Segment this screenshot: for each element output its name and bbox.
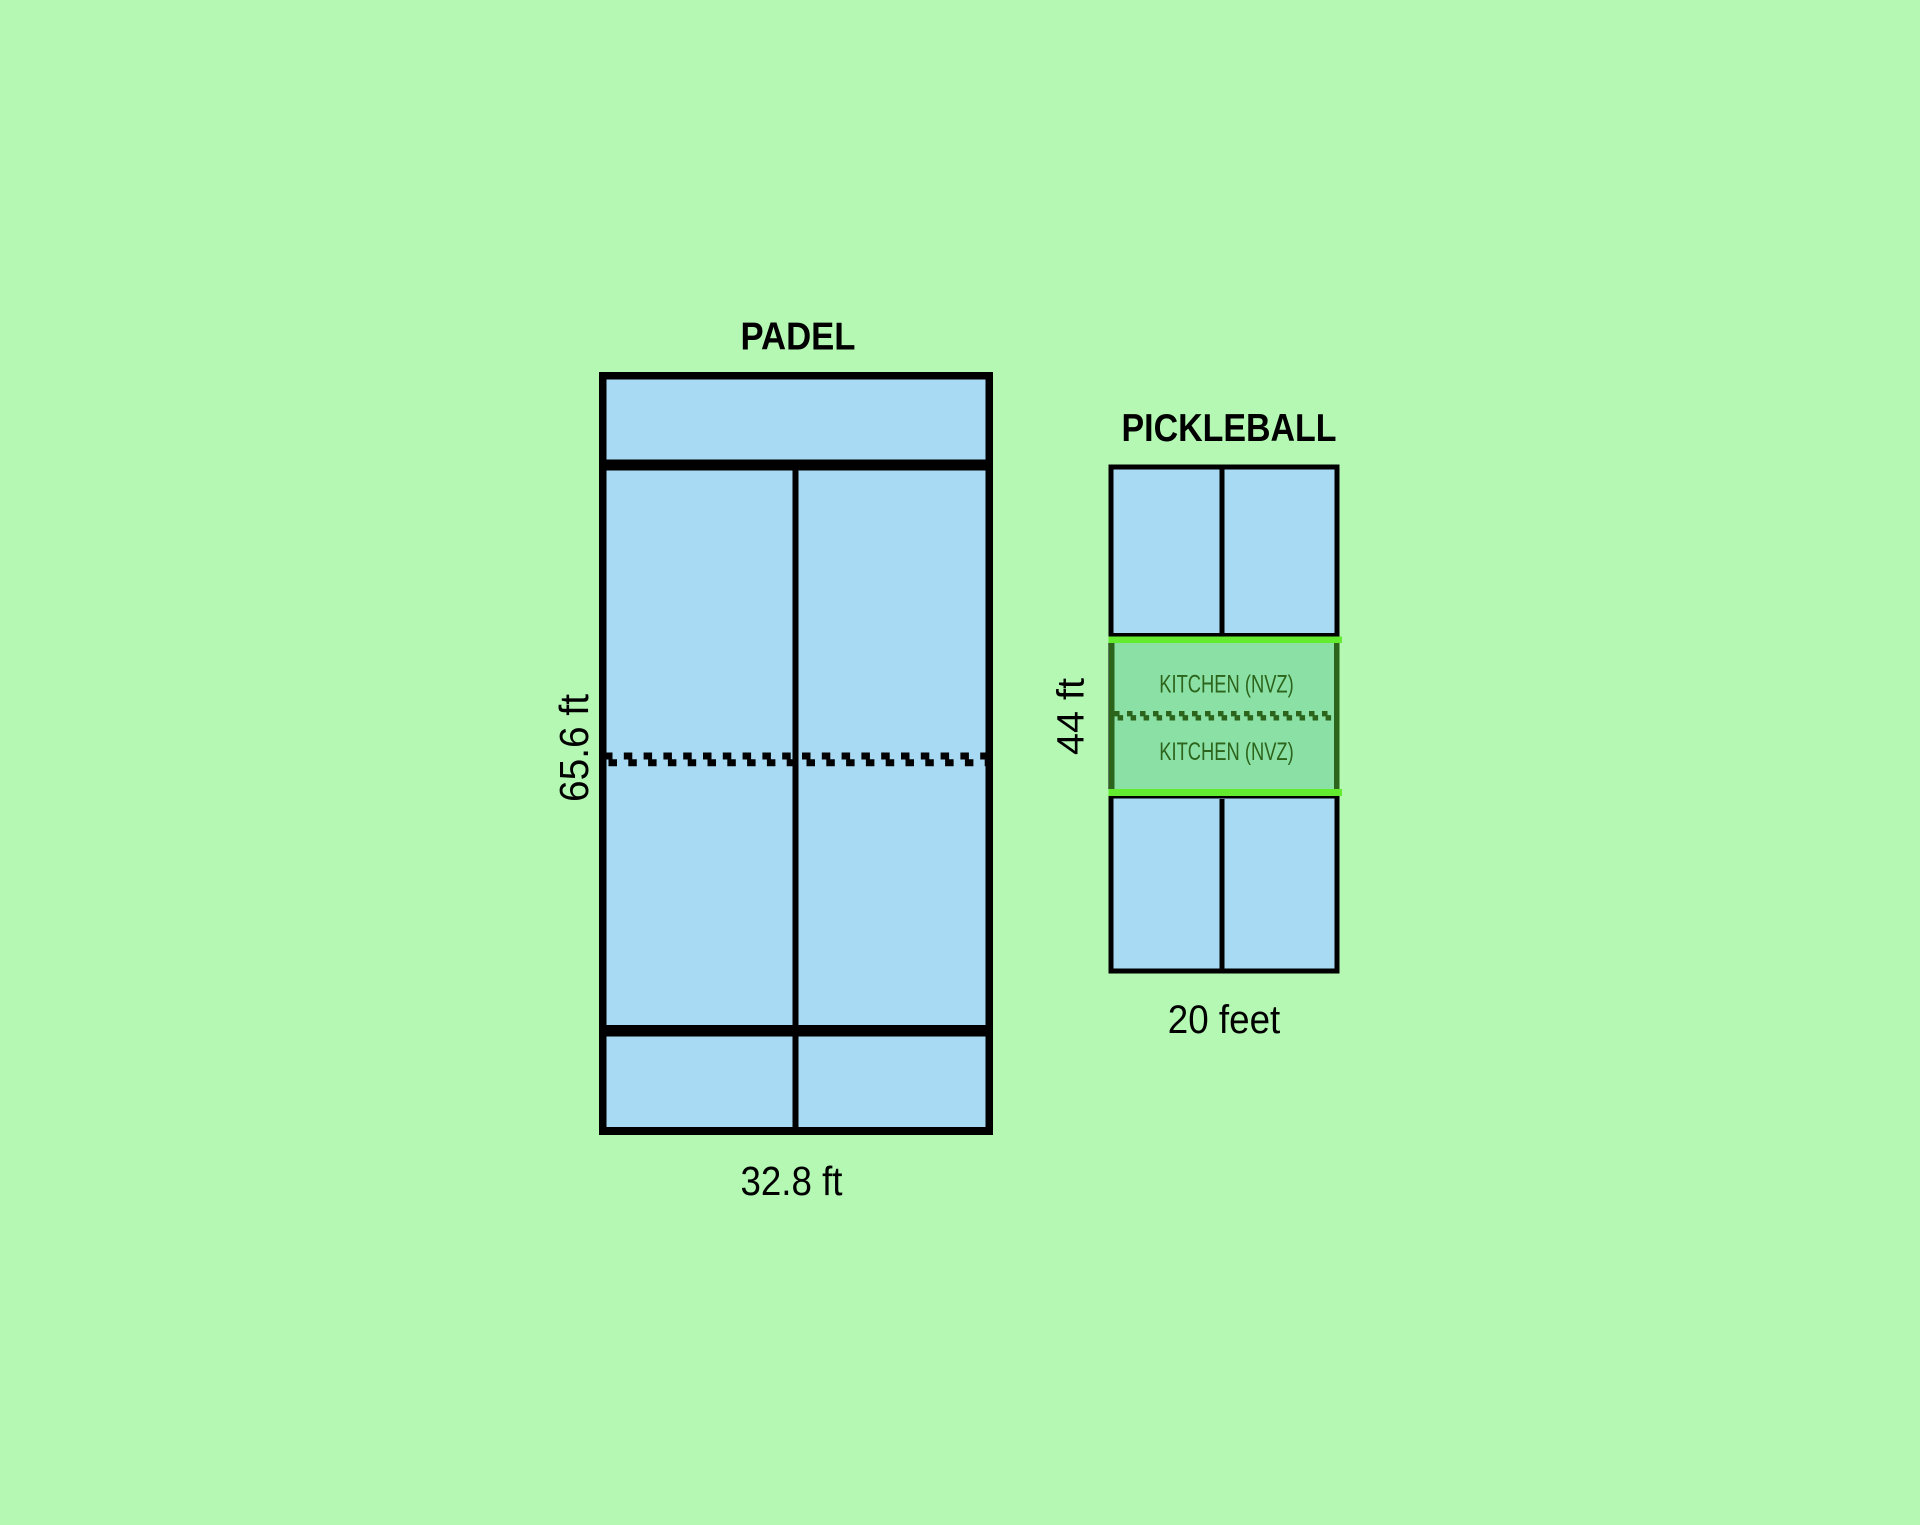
svg-text:20 feet: 20 feet (1168, 998, 1281, 1042)
svg-text:PICKLEBALL: PICKLEBALL (1122, 407, 1337, 450)
svg-text:32.8 ft: 32.8 ft (741, 1158, 844, 1204)
svg-text:KITCHEN (NVZ): KITCHEN (NVZ) (1159, 671, 1294, 699)
svg-text:44 ft: 44 ft (1051, 678, 1093, 755)
svg-text:PADEL: PADEL (741, 316, 856, 359)
svg-text:KITCHEN (NVZ): KITCHEN (NVZ) (1159, 738, 1294, 766)
svg-text:65.6 ft: 65.6 ft (551, 693, 597, 802)
